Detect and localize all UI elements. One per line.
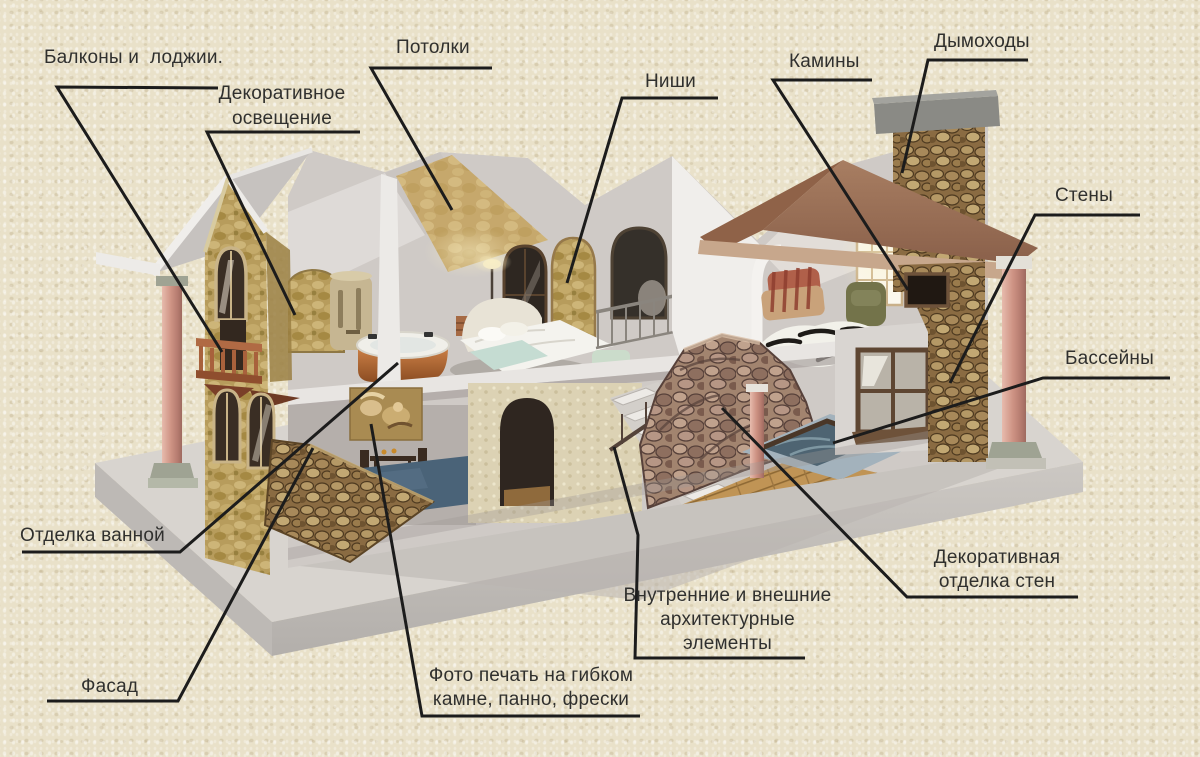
facade-window-upper (216, 248, 246, 320)
label-bathroom-finish: Отделка ванной (20, 524, 165, 548)
green-armchair (846, 282, 886, 326)
house-illustration (0, 0, 1200, 757)
striped-sofa (761, 267, 826, 321)
label-photo-print: Фото печать на гибком камне, панно, фрес… (418, 664, 644, 712)
label-decorative-lighting: Декоративное освещение (202, 81, 362, 131)
label-architectural-elements: Внутренние и внешние архитектурные элеме… (620, 584, 835, 656)
partition-wall-1 (377, 174, 401, 393)
label-walls: Стены (1055, 184, 1113, 208)
label-wall-decor: Декоративная отделка стен (908, 546, 1086, 594)
facade-side-band (266, 232, 292, 382)
diagram-stage: Балконы и лоджии. Декоративное освещение… (0, 0, 1200, 757)
facade-window-lower-1 (214, 390, 240, 462)
label-balconies: Балконы и лоджии. (44, 46, 223, 70)
label-niches: Ниши (645, 70, 696, 94)
label-ceilings: Потолки (396, 36, 470, 60)
label-chimneys: Дымоходы (934, 30, 1030, 54)
fireplace (906, 274, 948, 306)
label-pools: Бассейны (1065, 347, 1154, 371)
jacuzzi-tub (357, 332, 449, 382)
eave-board (96, 252, 160, 276)
label-fireplaces: Камины (789, 50, 860, 74)
label-facade: Фасад (81, 675, 138, 699)
